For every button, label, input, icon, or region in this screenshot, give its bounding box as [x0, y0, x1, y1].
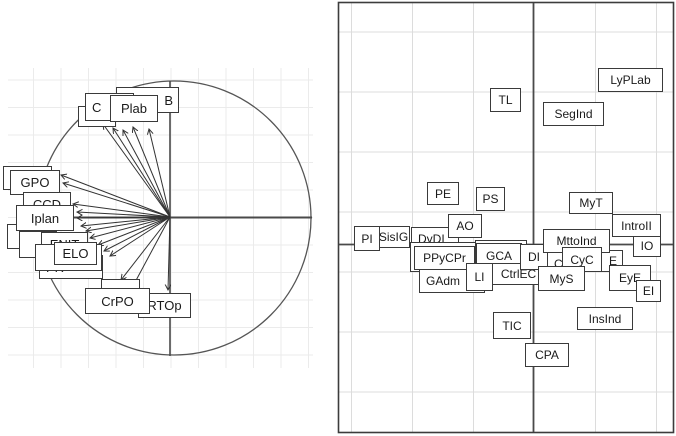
label-box-segind: SegInd: [543, 102, 604, 126]
variable-label-text: TIC: [502, 319, 521, 333]
label-box-ao: AO: [448, 214, 482, 238]
variable-label-text: MyT: [579, 196, 602, 210]
variable-label-text: B: [164, 93, 173, 108]
variable-label-layer: BCPlabGPOCCDIplanENITPRgELOeRTOpCrPOSisI…: [0, 0, 676, 436]
label-box-insind: InsInd: [577, 307, 633, 330]
label-box-tic: TIC: [493, 312, 531, 339]
variable-label-text: IntroII: [621, 219, 652, 233]
label-box-ps: PS: [476, 187, 505, 211]
variable-label-text: InsInd: [589, 312, 622, 326]
label-box-myt: MyT: [569, 192, 613, 214]
variable-label-text: CyC: [570, 253, 593, 267]
label-box-lyplab: LyPLab: [598, 68, 663, 92]
variable-label-text: DI: [528, 250, 540, 264]
label-box-introii: IntroII: [612, 214, 661, 237]
label-box-tl: TL: [490, 88, 521, 112]
variable-label-text: GPO: [21, 175, 50, 190]
variable-label-text: IO: [641, 239, 654, 253]
variable-label-text: PPyCPr: [423, 251, 466, 265]
label-box-io: IO: [633, 234, 661, 257]
variable-label-text: Plab: [121, 101, 147, 116]
label-box-pi: PI: [354, 226, 380, 251]
variable-label-text: LI: [474, 270, 484, 284]
variable-label-text: GAdm: [426, 274, 460, 288]
variable-label-text: PI: [361, 232, 372, 246]
label-box-cpa: CPA: [525, 343, 569, 367]
variable-label-text: ELO: [62, 246, 88, 261]
variable-label-text: EI: [643, 284, 654, 298]
variable-label-text: PE: [435, 187, 451, 201]
variable-label-text: TL: [498, 93, 512, 107]
label-box-plab: Plab: [110, 95, 158, 122]
label-box-iplan: Iplan: [16, 205, 74, 231]
variable-label-text: SisIG: [379, 230, 408, 244]
factor-map-figure: BCPlabGPOCCDIplanENITPRgELOeRTOpCrPOSisI…: [0, 0, 676, 436]
variable-label-text: PS: [482, 192, 498, 206]
variable-label-text: SegInd: [554, 107, 592, 121]
variable-label-text: CrPO: [101, 294, 134, 309]
label-box-ei: EI: [636, 280, 661, 302]
label-box-elo: ELO: [54, 242, 97, 265]
variable-label-text: GCA: [486, 249, 512, 263]
variable-label-text: RTOp: [147, 298, 181, 313]
label-box-mys: MyS: [538, 266, 585, 291]
variable-label-text: MttoInd: [556, 234, 596, 248]
variable-label-text: AO: [456, 219, 473, 233]
variable-label-text: CPA: [535, 348, 559, 362]
variable-label-text: LyPLab: [610, 73, 650, 87]
variable-label-text: C: [92, 100, 101, 115]
variable-label-text: MyS: [550, 272, 574, 286]
variable-label-text: Iplan: [31, 211, 59, 226]
label-box-pe: PE: [427, 182, 459, 205]
label-box-crpo: CrPO: [85, 288, 150, 314]
label-box-sisig: SisIG: [377, 226, 410, 248]
label-box-li: LI: [466, 263, 493, 291]
